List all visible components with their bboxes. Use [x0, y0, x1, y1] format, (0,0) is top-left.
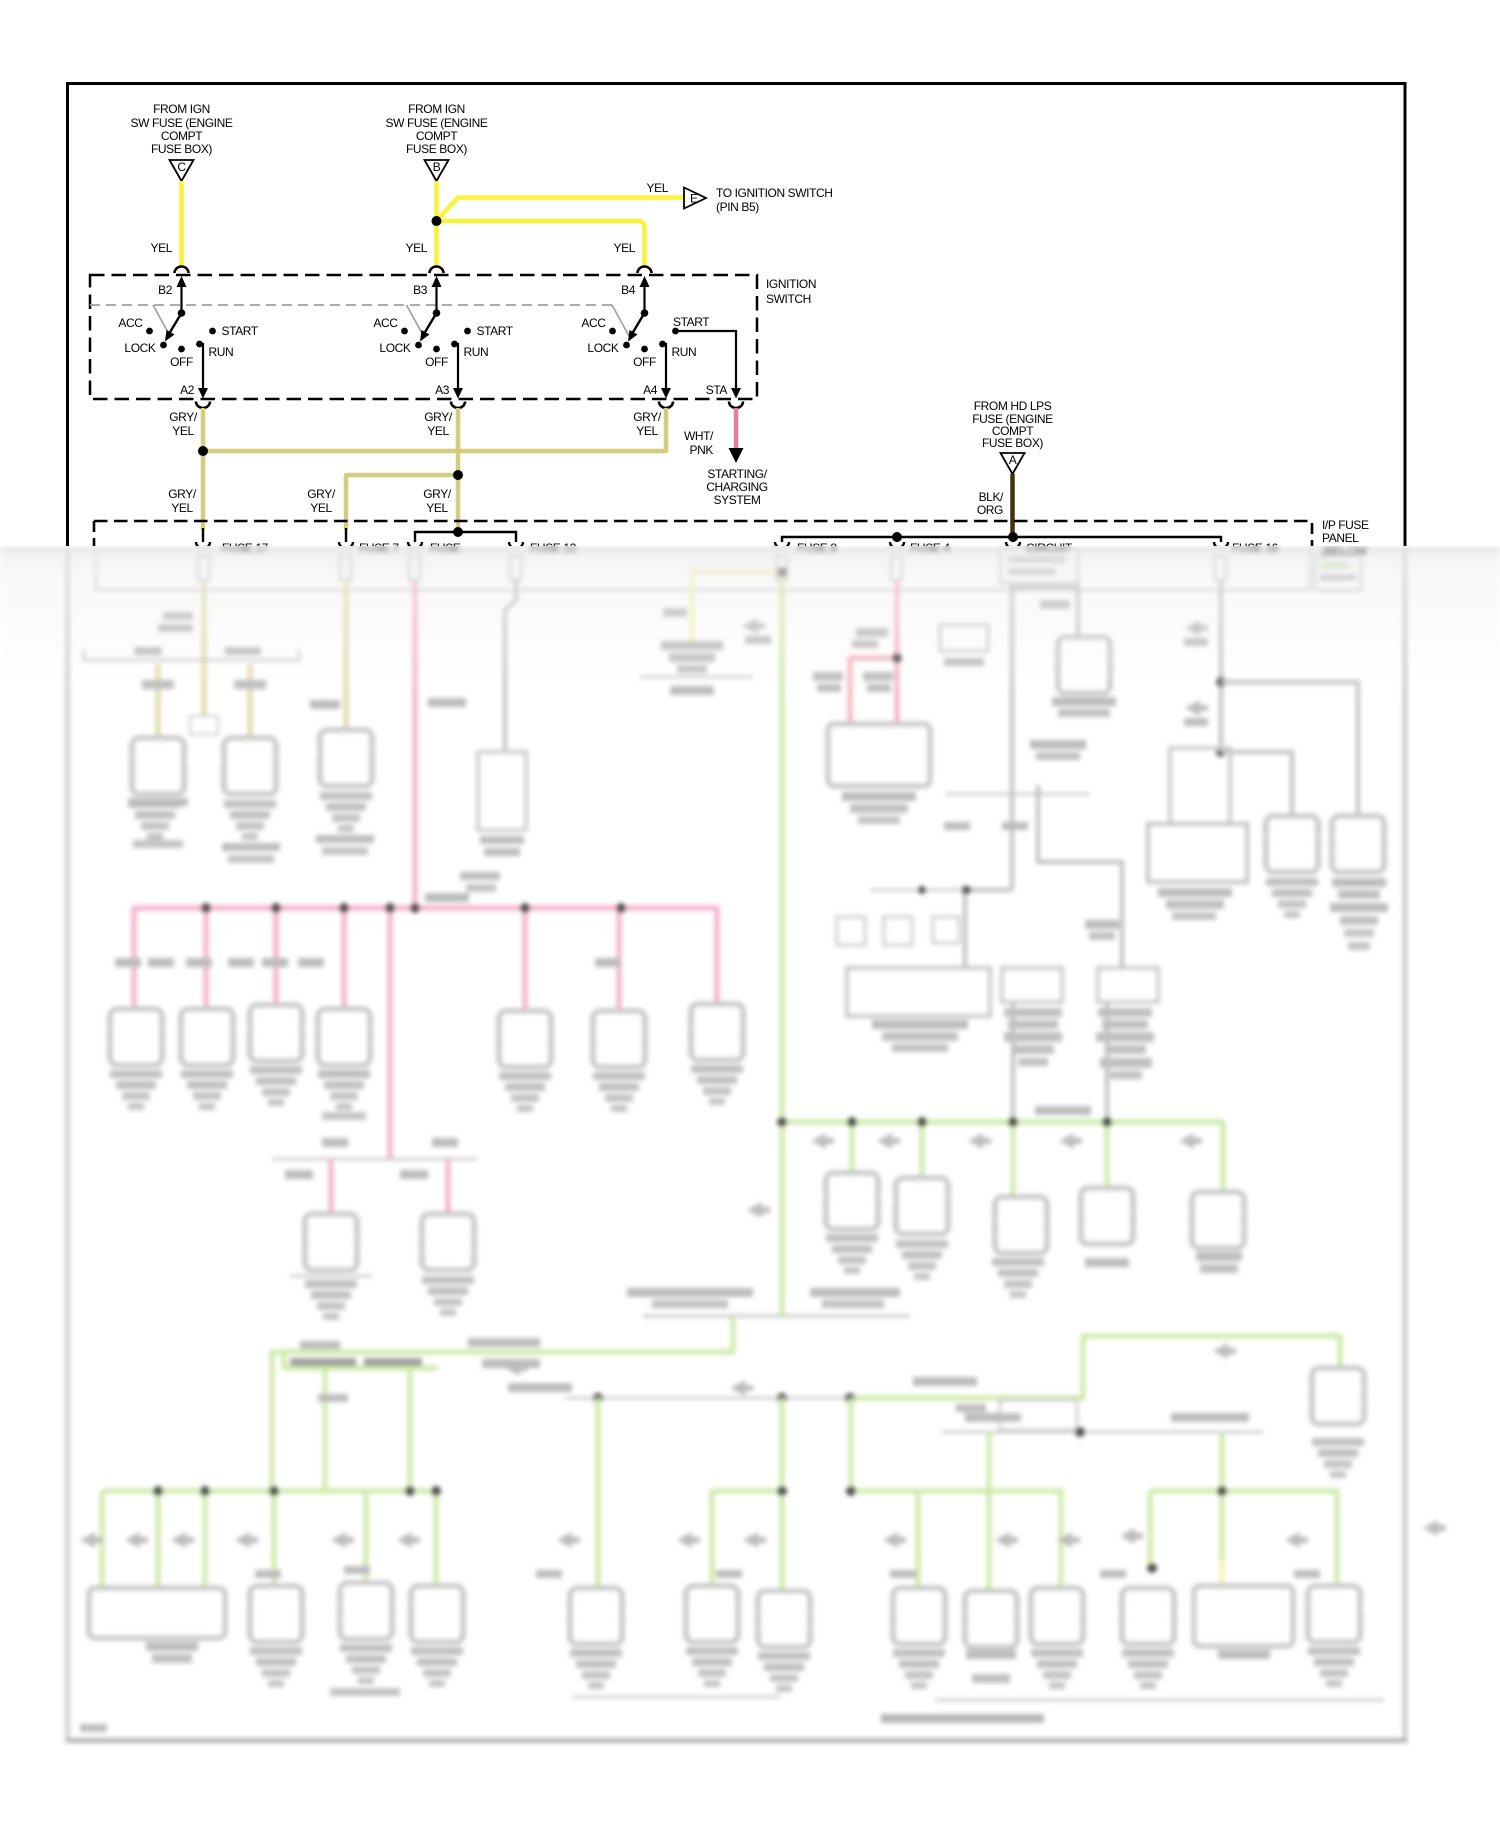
svg-text:OFF: OFF — [633, 355, 656, 369]
svg-text:GRY/: GRY/ — [423, 487, 452, 501]
svg-text:SWITCH: SWITCH — [766, 292, 811, 306]
svg-text:START: START — [222, 324, 259, 338]
svg-text:YEL: YEL — [172, 424, 194, 438]
svg-text:FUSE BOX): FUSE BOX) — [982, 436, 1043, 450]
svg-text:CHARGING: CHARGING — [706, 480, 768, 494]
svg-text:FROM IGN: FROM IGN — [408, 102, 465, 116]
svg-text:OFF: OFF — [170, 355, 193, 369]
svg-text:YEL: YEL — [427, 424, 449, 438]
svg-text:RUN: RUN — [464, 345, 489, 359]
svg-text:PANEL: PANEL — [1322, 531, 1359, 545]
svg-text:A2: A2 — [180, 383, 195, 397]
svg-text:C: C — [177, 160, 186, 174]
svg-text:LOCK: LOCK — [379, 341, 410, 355]
svg-text:START: START — [477, 324, 514, 338]
svg-text:FROM IGN: FROM IGN — [153, 102, 210, 116]
svg-text:YEL: YEL — [406, 241, 428, 255]
svg-text:I/P FUSE: I/P FUSE — [1322, 518, 1369, 532]
svg-text:B: B — [433, 160, 441, 174]
svg-text:ORG: ORG — [977, 503, 1003, 517]
svg-text:ACC: ACC — [581, 316, 606, 330]
svg-text:A4: A4 — [643, 383, 658, 397]
svg-text:(PIN B5): (PIN B5) — [716, 200, 759, 214]
svg-text:A: A — [1009, 453, 1017, 467]
svg-text:SW FUSE (ENGINE: SW FUSE (ENGINE — [385, 116, 487, 130]
svg-text:A3: A3 — [435, 383, 450, 397]
svg-text:BLK/: BLK/ — [979, 490, 1004, 504]
svg-text:SW FUSE (ENGINE: SW FUSE (ENGINE — [130, 116, 232, 130]
svg-text:GRY/: GRY/ — [307, 487, 336, 501]
svg-text:YEL: YEL — [614, 241, 636, 255]
svg-text:GRY/: GRY/ — [424, 410, 453, 424]
svg-text:RUN: RUN — [672, 345, 697, 359]
svg-text:E: E — [690, 192, 698, 206]
svg-text:FUSE BOX): FUSE BOX) — [151, 142, 212, 156]
svg-text:IGNITION: IGNITION — [766, 277, 816, 291]
svg-text:STA: STA — [706, 383, 728, 397]
svg-text:COMPT: COMPT — [416, 129, 458, 143]
svg-text:LOCK: LOCK — [124, 341, 155, 355]
svg-text:YEL: YEL — [310, 501, 332, 515]
svg-text:FUSE BOX): FUSE BOX) — [406, 142, 467, 156]
svg-text:YEL: YEL — [426, 501, 448, 515]
svg-text:GRY/: GRY/ — [169, 410, 198, 424]
svg-text:B3: B3 — [413, 283, 428, 297]
svg-text:SYSTEM: SYSTEM — [714, 493, 761, 507]
svg-text:GRY/: GRY/ — [168, 487, 197, 501]
svg-text:OFF: OFF — [425, 355, 448, 369]
svg-text:B4: B4 — [621, 283, 636, 297]
svg-text:START: START — [673, 315, 710, 329]
svg-text:STARTING/: STARTING/ — [707, 467, 767, 481]
svg-text:TO IGNITION SWITCH: TO IGNITION SWITCH — [716, 186, 833, 200]
svg-text:WHT/: WHT/ — [684, 429, 714, 443]
svg-text:B2: B2 — [158, 283, 173, 297]
svg-text:ACC: ACC — [373, 316, 398, 330]
svg-text:COMPT: COMPT — [161, 129, 203, 143]
svg-text:PNK: PNK — [690, 443, 714, 457]
svg-text:GRY/: GRY/ — [633, 410, 662, 424]
svg-text:YEL: YEL — [636, 424, 658, 438]
svg-text:YEL: YEL — [171, 501, 193, 515]
svg-text:ACC: ACC — [118, 316, 143, 330]
svg-text:FROM HD LPS: FROM HD LPS — [974, 399, 1052, 413]
svg-text:YEL: YEL — [151, 241, 173, 255]
svg-text:LOCK: LOCK — [587, 341, 618, 355]
svg-text:(BELOW: (BELOW — [1322, 544, 1368, 558]
svg-text:RUN: RUN — [209, 345, 234, 359]
svg-text:YEL: YEL — [647, 181, 669, 195]
